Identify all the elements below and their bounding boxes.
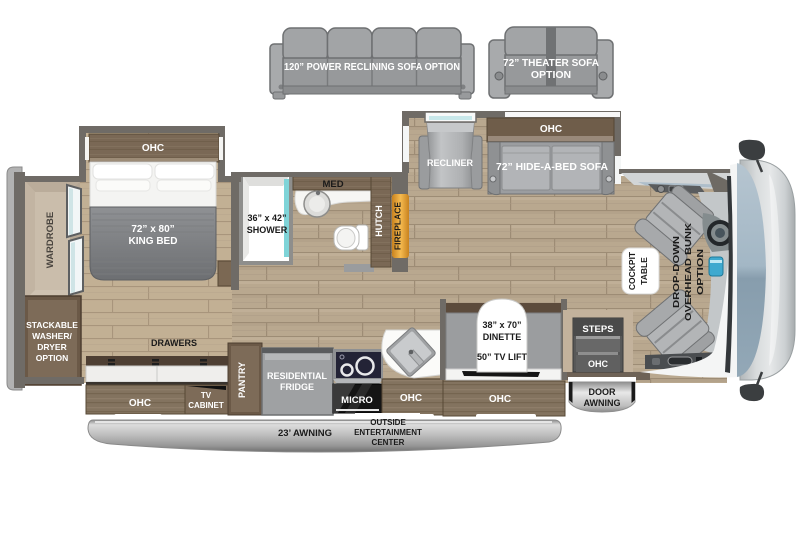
svg-text:CENTER: CENTER xyxy=(372,438,405,447)
svg-text:SHOWER: SHOWER xyxy=(247,225,288,235)
svg-text:OHC: OHC xyxy=(129,398,151,409)
svg-text:OHC: OHC xyxy=(489,394,511,405)
svg-text:OHC: OHC xyxy=(142,143,164,154)
svg-text:MICRO: MICRO xyxy=(341,395,373,406)
svg-text:23’ AWNING: 23’ AWNING xyxy=(278,428,332,439)
svg-text:WASHER/: WASHER/ xyxy=(32,331,72,341)
svg-text:72” HIDE-A-BED SOFA: 72” HIDE-A-BED SOFA xyxy=(496,162,608,173)
svg-text:OPTION: OPTION xyxy=(531,69,571,81)
svg-text:RESIDENTIAL: RESIDENTIAL xyxy=(267,371,328,381)
svg-text:DROP-DOWN: DROP-DOWN xyxy=(671,236,681,308)
svg-text:TV: TV xyxy=(201,391,212,400)
svg-text:CABINET: CABINET xyxy=(188,401,224,410)
svg-text:HUTCH: HUTCH xyxy=(374,205,384,237)
svg-text:OHC: OHC xyxy=(588,359,609,369)
svg-text:RECLINER: RECLINER xyxy=(427,158,473,168)
svg-text:OPTION: OPTION xyxy=(695,249,705,295)
svg-text:FIREPLACE: FIREPLACE xyxy=(393,202,403,251)
svg-text:ENTERTAINMENT: ENTERTAINMENT xyxy=(354,428,422,437)
svg-text:TABLE: TABLE xyxy=(639,257,649,285)
svg-text:MED: MED xyxy=(322,179,343,190)
svg-text:STACKABLE: STACKABLE xyxy=(26,320,78,330)
svg-text:OHC: OHC xyxy=(540,124,562,135)
svg-text:DRYER: DRYER xyxy=(37,342,66,352)
svg-text:AWNING: AWNING xyxy=(584,398,621,408)
svg-text:OPTION: OPTION xyxy=(36,353,69,363)
svg-text:OHC: OHC xyxy=(400,393,422,404)
svg-text:DRAWERS: DRAWERS xyxy=(151,338,197,348)
svg-text:FRIDGE: FRIDGE xyxy=(280,382,314,392)
svg-text:72” THEATER SOFA: 72” THEATER SOFA xyxy=(503,57,599,69)
svg-text:50” TV LIFT: 50” TV LIFT xyxy=(477,352,528,362)
svg-text:KING BED: KING BED xyxy=(129,236,178,247)
svg-text:72” x 80”: 72” x 80” xyxy=(131,224,174,235)
svg-text:38” x 70”: 38” x 70” xyxy=(482,320,521,330)
svg-text:PANTRY: PANTRY xyxy=(237,362,247,398)
svg-text:DOOR: DOOR xyxy=(589,387,617,397)
svg-text:COCKPIT: COCKPIT xyxy=(627,251,637,290)
svg-text:WARDROBE: WARDROBE xyxy=(45,212,56,268)
svg-text:OUTSIDE: OUTSIDE xyxy=(370,418,406,427)
svg-text:DINETTE: DINETTE xyxy=(483,332,522,342)
svg-text:STEPS: STEPS xyxy=(582,324,613,335)
svg-text:36” x 42”: 36” x 42” xyxy=(247,213,286,223)
svg-text:120” POWER RECLINING SOFA OPTI: 120” POWER RECLINING SOFA OPTION xyxy=(284,61,460,73)
svg-text:OVERHEAD BUNK: OVERHEAD BUNK xyxy=(683,222,693,321)
